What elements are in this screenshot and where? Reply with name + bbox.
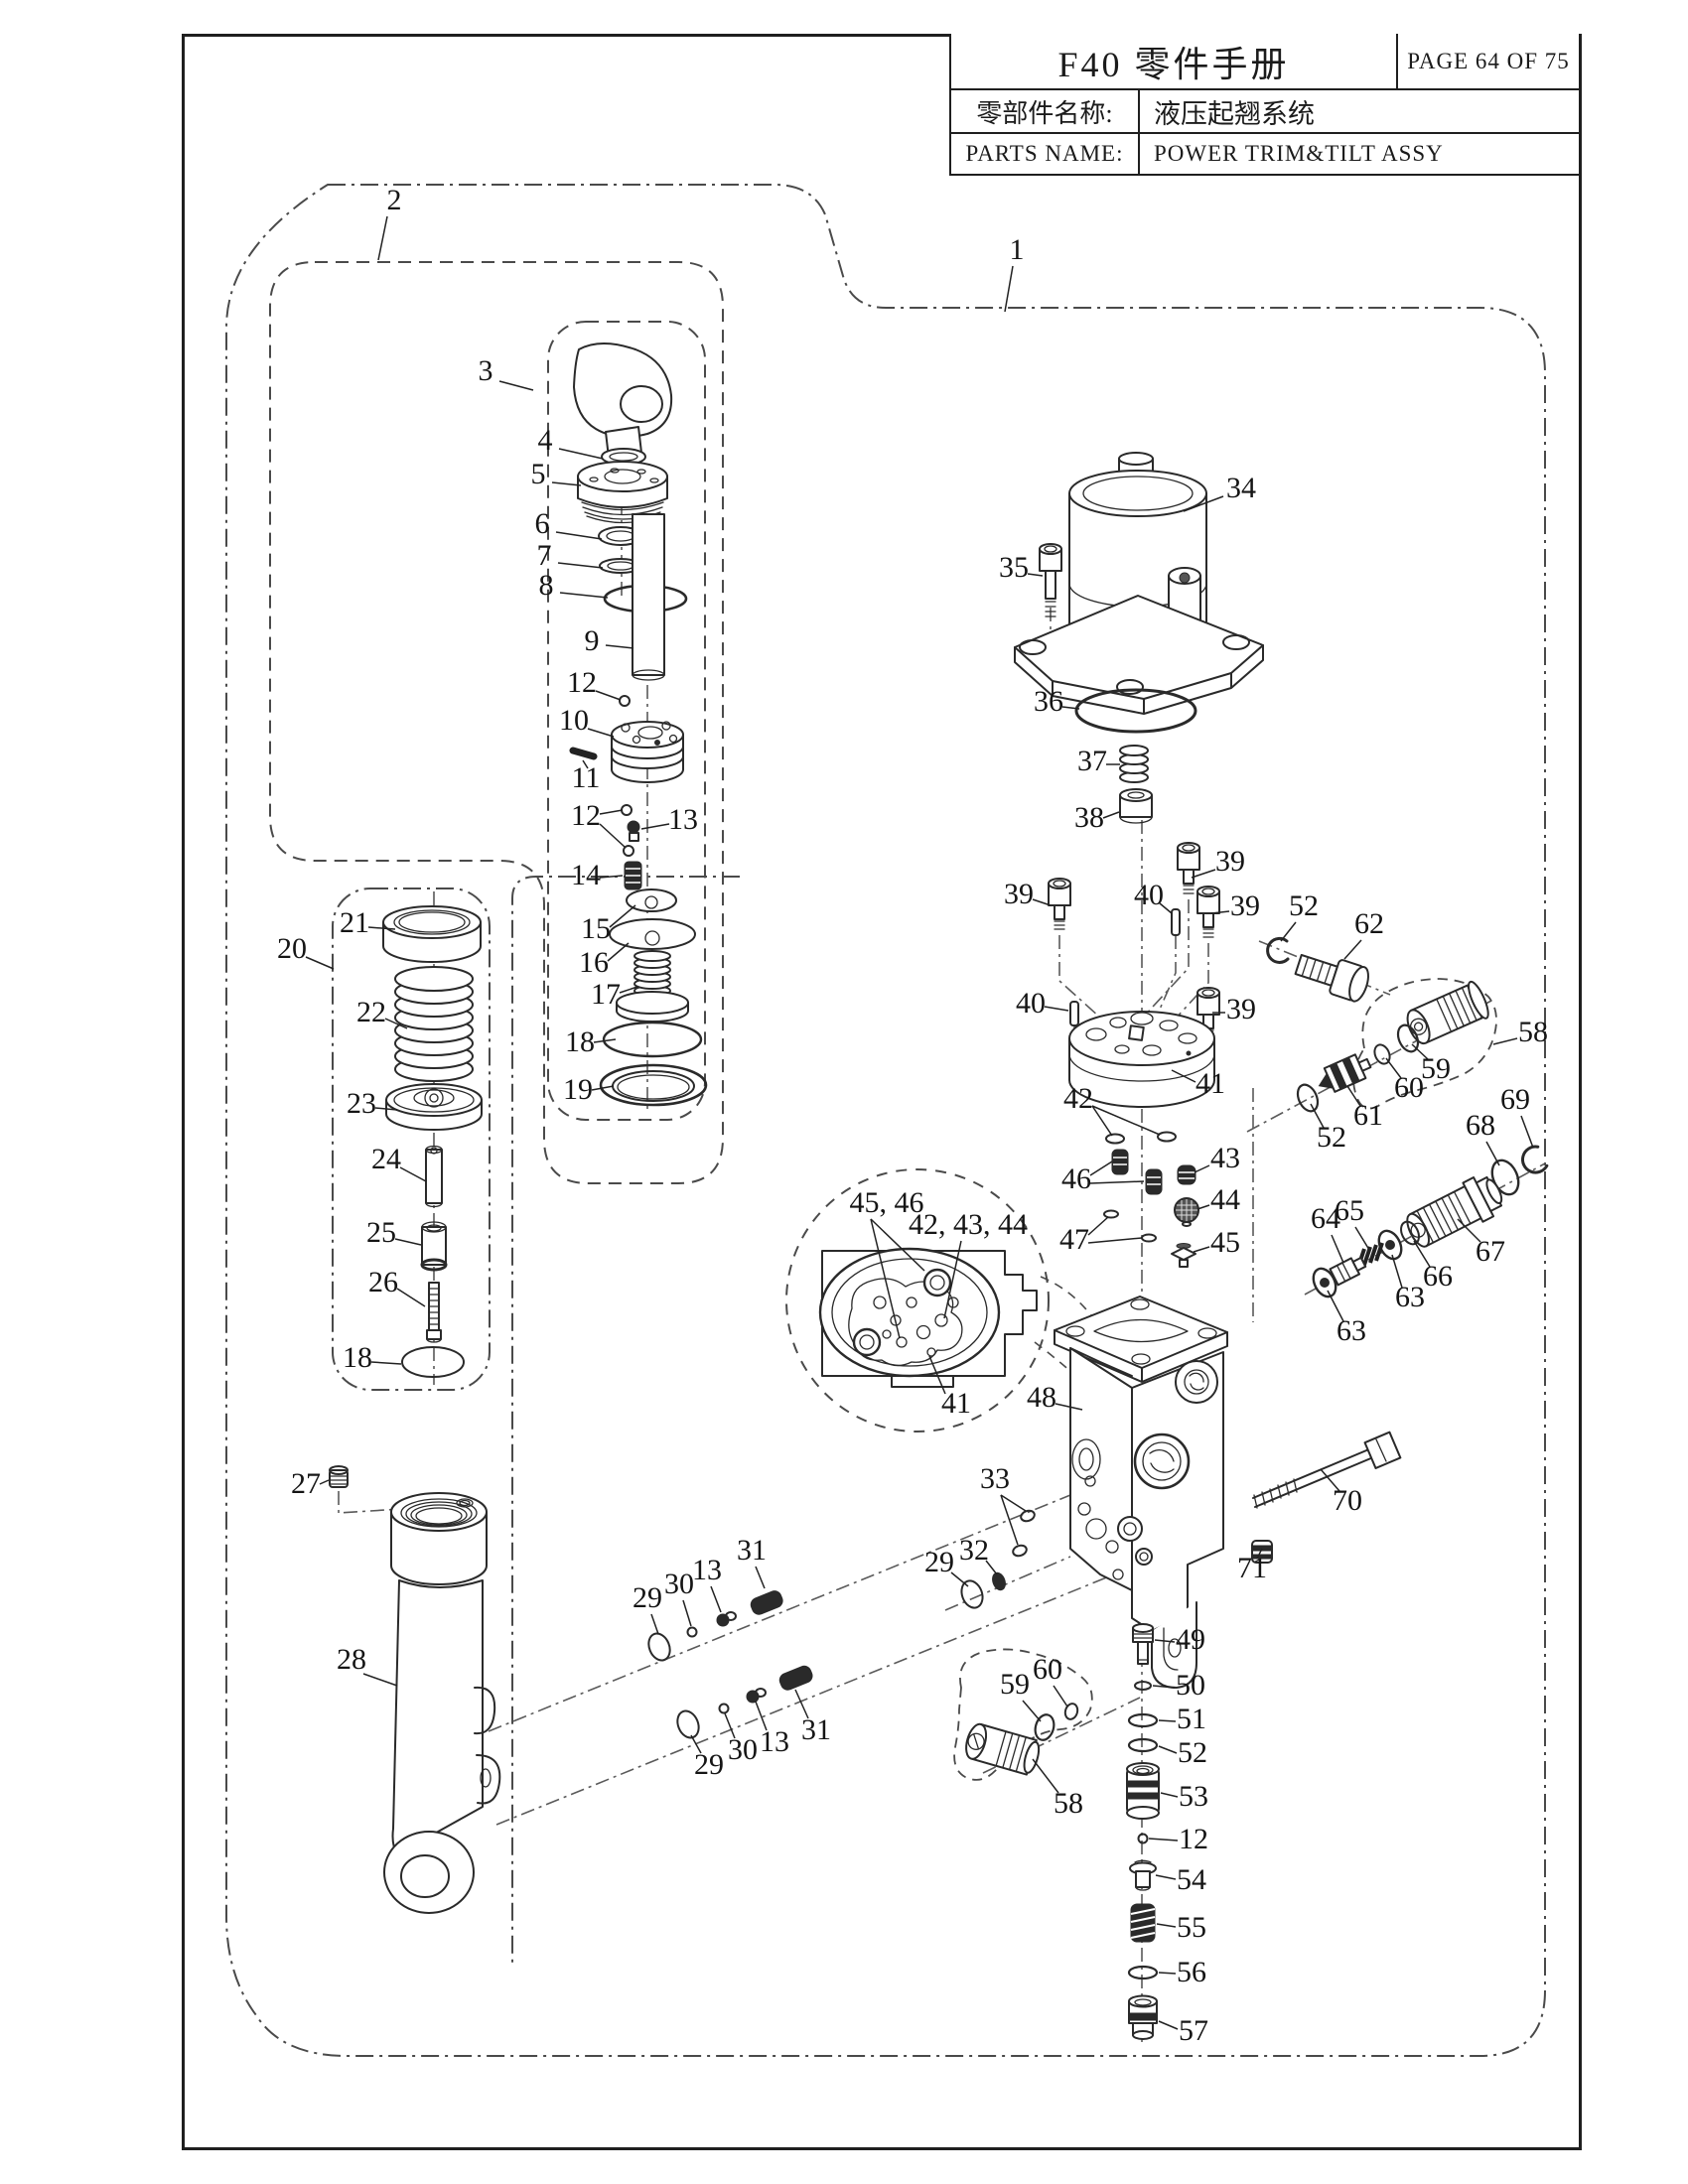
leader-line-35 xyxy=(1028,574,1043,576)
callout-1: 1 xyxy=(1010,233,1025,266)
leader-line-64 xyxy=(1332,1235,1343,1263)
part-14-grub-screw xyxy=(625,862,641,889)
leader-line-46 xyxy=(1090,1161,1112,1175)
part-13-check-ball-a xyxy=(628,821,639,841)
callout-44: 44 xyxy=(1210,1183,1240,1216)
leader-line-65 xyxy=(1355,1227,1369,1250)
leader-line-40 xyxy=(1045,1007,1068,1011)
part-58-release-valve-b xyxy=(962,1721,1042,1776)
callout-59: 59 xyxy=(1000,1668,1030,1701)
callout-31: 31 xyxy=(801,1713,831,1746)
part-16-disc xyxy=(610,919,695,949)
leader-line-12 xyxy=(600,824,625,847)
part-26-screw xyxy=(427,1283,441,1342)
part-27-grub-screw xyxy=(330,1466,348,1487)
part-13-ball-row1 xyxy=(717,1612,736,1626)
leader-line-26 xyxy=(397,1289,425,1306)
leader-line-3 xyxy=(499,381,533,390)
part-18-oring-a xyxy=(604,1023,701,1056)
part-18-disc-b xyxy=(402,1347,464,1377)
leader-line-1 xyxy=(1005,266,1013,312)
callout-52: 52 xyxy=(1317,1121,1346,1154)
callout-60: 60 xyxy=(1033,1653,1062,1686)
leader-line-33 xyxy=(1001,1495,1026,1511)
part-42-rings xyxy=(1106,1133,1176,1144)
callout-39: 39 xyxy=(1230,889,1260,922)
leader-line-46 xyxy=(1090,1181,1144,1183)
callout-10: 10 xyxy=(559,704,589,737)
leader-line-55 xyxy=(1157,1924,1176,1927)
callout-17: 17 xyxy=(591,978,621,1011)
part-47-rings xyxy=(1104,1211,1156,1242)
callout-23: 23 xyxy=(347,1087,376,1120)
callout-4: 4 xyxy=(538,424,553,457)
part-33-rings xyxy=(1012,1509,1037,1558)
callout-41: 41 xyxy=(1196,1067,1225,1100)
part-30-ring-row2 xyxy=(720,1705,729,1713)
leader-line-4 xyxy=(559,449,603,459)
part-50-ring xyxy=(1135,1682,1151,1690)
callout-43: 43 xyxy=(1210,1142,1240,1174)
part-38-bushing xyxy=(1120,789,1152,823)
leader-line-44 xyxy=(1197,1205,1209,1209)
callout-12: 12 xyxy=(571,799,601,832)
part-21-spring-guide-ring xyxy=(383,906,481,962)
callout-63: 63 xyxy=(1395,1281,1425,1313)
callout-58: 58 xyxy=(1518,1016,1548,1048)
callout-13: 13 xyxy=(692,1554,722,1586)
part-31-sleeve-row1 xyxy=(749,1589,784,1617)
leader-line-13 xyxy=(641,824,669,829)
callout-58: 58 xyxy=(1054,1787,1083,1820)
callout-68: 68 xyxy=(1466,1109,1495,1142)
callout-70: 70 xyxy=(1333,1484,1362,1517)
callout-21: 21 xyxy=(340,906,369,939)
callout-32: 32 xyxy=(959,1534,989,1567)
callout-16: 16 xyxy=(579,946,609,979)
callout-25: 25 xyxy=(366,1216,396,1249)
callout-64: 64 xyxy=(1311,1202,1340,1235)
part-55-spring xyxy=(1131,1904,1155,1942)
callout-20: 20 xyxy=(277,932,307,965)
leader-line-10 xyxy=(588,729,614,737)
part-37-spring xyxy=(1120,746,1148,782)
part-39-bolt-c xyxy=(1197,887,1219,937)
part-12-ball-c xyxy=(624,846,633,856)
part-15-washer xyxy=(627,889,676,911)
callout-2: 2 xyxy=(387,184,402,216)
callout-15: 15 xyxy=(581,912,611,945)
part-17-valve-screw xyxy=(617,951,688,1022)
part-40-pin-b xyxy=(1070,1002,1078,1025)
callout-60: 60 xyxy=(1394,1071,1424,1104)
part-52-oring-c xyxy=(1129,1739,1157,1751)
callout-42-43-44: 42, 43, 44 xyxy=(909,1208,1028,1241)
part-54-valve-seat xyxy=(1130,1860,1156,1890)
part-39-bolt-b xyxy=(1049,879,1070,929)
part-62-screw-plug xyxy=(1293,947,1372,1003)
part-32-oring xyxy=(990,1570,1007,1591)
part-9-piston-rod xyxy=(633,514,664,680)
callout-69: 69 xyxy=(1500,1083,1530,1116)
leader-line-38 xyxy=(1103,812,1119,818)
part-58-release-valve-a xyxy=(1402,980,1491,1048)
leader-line-12 xyxy=(600,810,623,814)
callout-61: 61 xyxy=(1353,1099,1383,1132)
part-13-ball-row2 xyxy=(747,1689,766,1703)
part-3-rod-eye-end xyxy=(574,343,671,458)
leader-line-39 xyxy=(1192,870,1215,878)
leader-line-29 xyxy=(651,1614,658,1634)
leader-line-12 xyxy=(1149,1839,1178,1841)
callout-53: 53 xyxy=(1179,1780,1208,1813)
leader-line-43 xyxy=(1195,1165,1209,1172)
leader-line-33 xyxy=(1001,1495,1018,1545)
callout-29: 29 xyxy=(633,1581,662,1614)
leader-line-9 xyxy=(606,645,633,648)
leader-line-18 xyxy=(371,1362,401,1364)
callout-38: 38 xyxy=(1074,801,1104,834)
part-25-bushing xyxy=(422,1222,446,1270)
part-49-fitting xyxy=(1133,1624,1153,1664)
callout-30: 30 xyxy=(664,1568,694,1600)
leader-line-24 xyxy=(400,1167,426,1181)
callout-37: 37 xyxy=(1077,745,1107,777)
leader-line-28 xyxy=(363,1674,397,1686)
part-43-plug xyxy=(1178,1165,1196,1184)
part-19-seal-ring xyxy=(601,1065,706,1105)
callout-29: 29 xyxy=(694,1748,724,1781)
callout-55: 55 xyxy=(1177,1911,1206,1944)
leader-line-2 xyxy=(378,216,387,260)
callout-39: 39 xyxy=(1215,845,1245,878)
callout-71: 71 xyxy=(1237,1552,1267,1584)
part-45-shuttle-valve xyxy=(1172,1244,1196,1268)
callout-50: 50 xyxy=(1176,1669,1205,1702)
callout-39: 39 xyxy=(1226,993,1256,1025)
leader-line-57 xyxy=(1159,2021,1178,2029)
leader-line-59 xyxy=(1023,1701,1041,1721)
callout-59: 59 xyxy=(1421,1052,1451,1085)
leader-line-47 xyxy=(1088,1217,1108,1235)
assembly-boundary-20 xyxy=(333,888,490,1390)
leader-line-52 xyxy=(1159,1746,1177,1753)
leader-line-62 xyxy=(1344,940,1361,959)
callout-63: 63 xyxy=(1336,1314,1366,1347)
leader-line-58 xyxy=(1493,1038,1517,1044)
callout-28: 28 xyxy=(337,1643,366,1676)
callout-27: 27 xyxy=(291,1467,321,1500)
leader-line-20 xyxy=(306,957,334,969)
callout-51: 51 xyxy=(1177,1703,1206,1735)
part-44-filter-screen xyxy=(1175,1198,1198,1226)
leader-line-16 xyxy=(608,943,629,961)
leader-line-5 xyxy=(552,482,581,485)
leader-line-31 xyxy=(756,1567,765,1588)
callout-5: 5 xyxy=(531,458,546,490)
part-29-oring-row2 xyxy=(673,1707,702,1740)
part-61-valve xyxy=(1314,1051,1374,1097)
leader-line-56 xyxy=(1159,1973,1176,1974)
leader-line-27 xyxy=(320,1480,329,1484)
leader-line-53 xyxy=(1161,1793,1178,1797)
leader-line-54 xyxy=(1156,1875,1176,1879)
callout-19: 19 xyxy=(563,1073,593,1106)
callout-34: 34 xyxy=(1226,472,1256,504)
callout-3: 3 xyxy=(479,354,493,387)
leader-line-47 xyxy=(1088,1238,1142,1243)
callout-9: 9 xyxy=(585,624,600,657)
callout-40: 40 xyxy=(1134,879,1164,911)
part-56-oring xyxy=(1129,1967,1157,1979)
callout-56: 56 xyxy=(1177,1956,1206,1988)
callout-13: 13 xyxy=(668,803,698,836)
leader-line-45 xyxy=(1194,1247,1209,1252)
part-51-oring xyxy=(1129,1714,1157,1726)
part-11-pin xyxy=(573,751,594,756)
leader-line-60 xyxy=(1054,1686,1067,1706)
callout-12: 12 xyxy=(1179,1823,1208,1855)
part-52-clip-a xyxy=(1268,938,1288,962)
callout-57: 57 xyxy=(1179,2014,1208,2047)
callout-26: 26 xyxy=(368,1266,398,1298)
leader-line-13 xyxy=(711,1586,721,1612)
callout-31: 31 xyxy=(737,1534,767,1567)
part-24-tube xyxy=(426,1147,442,1207)
callout-8: 8 xyxy=(539,569,554,602)
part-53-valve-body xyxy=(1127,1763,1159,1819)
callout-46: 46 xyxy=(1061,1162,1091,1195)
leader-line-8 xyxy=(560,593,608,598)
leader-line-30 xyxy=(683,1600,691,1626)
part-35-bolt xyxy=(1040,544,1061,616)
callout-12: 12 xyxy=(567,666,597,699)
part-28-cylinder-body xyxy=(384,1493,499,1913)
part-12-ball-d xyxy=(1139,1835,1148,1843)
part-46-grub-screws xyxy=(1112,1150,1162,1194)
callout-29: 29 xyxy=(924,1546,954,1578)
callout-36: 36 xyxy=(1034,685,1063,718)
callout-62: 62 xyxy=(1354,907,1384,940)
callout-42: 42 xyxy=(1063,1082,1093,1115)
part-12-ball-b xyxy=(622,805,632,815)
leader-line-51 xyxy=(1159,1720,1176,1721)
callout-33: 33 xyxy=(980,1462,1010,1495)
callout-40: 40 xyxy=(1016,987,1046,1020)
callout-14: 14 xyxy=(571,859,601,891)
callout-66: 66 xyxy=(1423,1260,1453,1293)
part-69-clip xyxy=(1519,1145,1548,1176)
manual-page: F40 零件手册 PAGE 64 OF 75 零部件名称: 液压起翘系统 PAR… xyxy=(0,0,1688,2184)
callout-18: 18 xyxy=(565,1025,595,1058)
callout-18: 18 xyxy=(343,1341,372,1374)
callout-30: 30 xyxy=(728,1733,758,1766)
callout-52: 52 xyxy=(1178,1736,1207,1769)
part-52-oring-b xyxy=(1294,1082,1322,1115)
callout-11: 11 xyxy=(572,761,601,794)
part-29-oring-c xyxy=(958,1577,986,1610)
callout-54: 54 xyxy=(1177,1863,1206,1896)
part-22-spring xyxy=(395,967,473,1081)
callout-47: 47 xyxy=(1059,1223,1089,1256)
callout-6: 6 xyxy=(535,507,550,540)
part-12-ball-a xyxy=(620,696,630,706)
part-30-ring-row1 xyxy=(688,1628,697,1637)
callout-41: 41 xyxy=(941,1387,971,1420)
callout-67: 67 xyxy=(1476,1235,1505,1268)
leader-line-68 xyxy=(1486,1142,1499,1165)
part-23-spring-seat xyxy=(386,1084,482,1130)
exploded-diagram: 2134567891210111213141516171819202122232… xyxy=(0,0,1688,2184)
callout-52: 52 xyxy=(1289,889,1319,922)
callout-13: 13 xyxy=(760,1725,789,1758)
part-39-bolt-a xyxy=(1178,843,1199,893)
callout-39: 39 xyxy=(1004,878,1034,910)
part-31-sleeve-row2 xyxy=(777,1664,814,1692)
leader-line-12 xyxy=(596,691,621,700)
leader-line-7 xyxy=(558,563,603,568)
leader-line-69 xyxy=(1521,1116,1533,1148)
part-57-plug xyxy=(1129,1996,1157,2040)
callout-48: 48 xyxy=(1027,1381,1056,1414)
callout-7: 7 xyxy=(537,539,552,572)
callout-35: 35 xyxy=(999,551,1029,584)
part-40-pin-a xyxy=(1172,909,1180,935)
part-70-long-bolt xyxy=(1253,1433,1400,1508)
leader-line-52 xyxy=(1281,922,1296,941)
leader-line-25 xyxy=(395,1239,421,1245)
leader-line-6 xyxy=(556,532,602,539)
callout-22: 22 xyxy=(356,996,386,1028)
callout-49: 49 xyxy=(1176,1623,1205,1656)
callout-24: 24 xyxy=(371,1143,401,1175)
callout-45: 45 xyxy=(1210,1226,1240,1259)
